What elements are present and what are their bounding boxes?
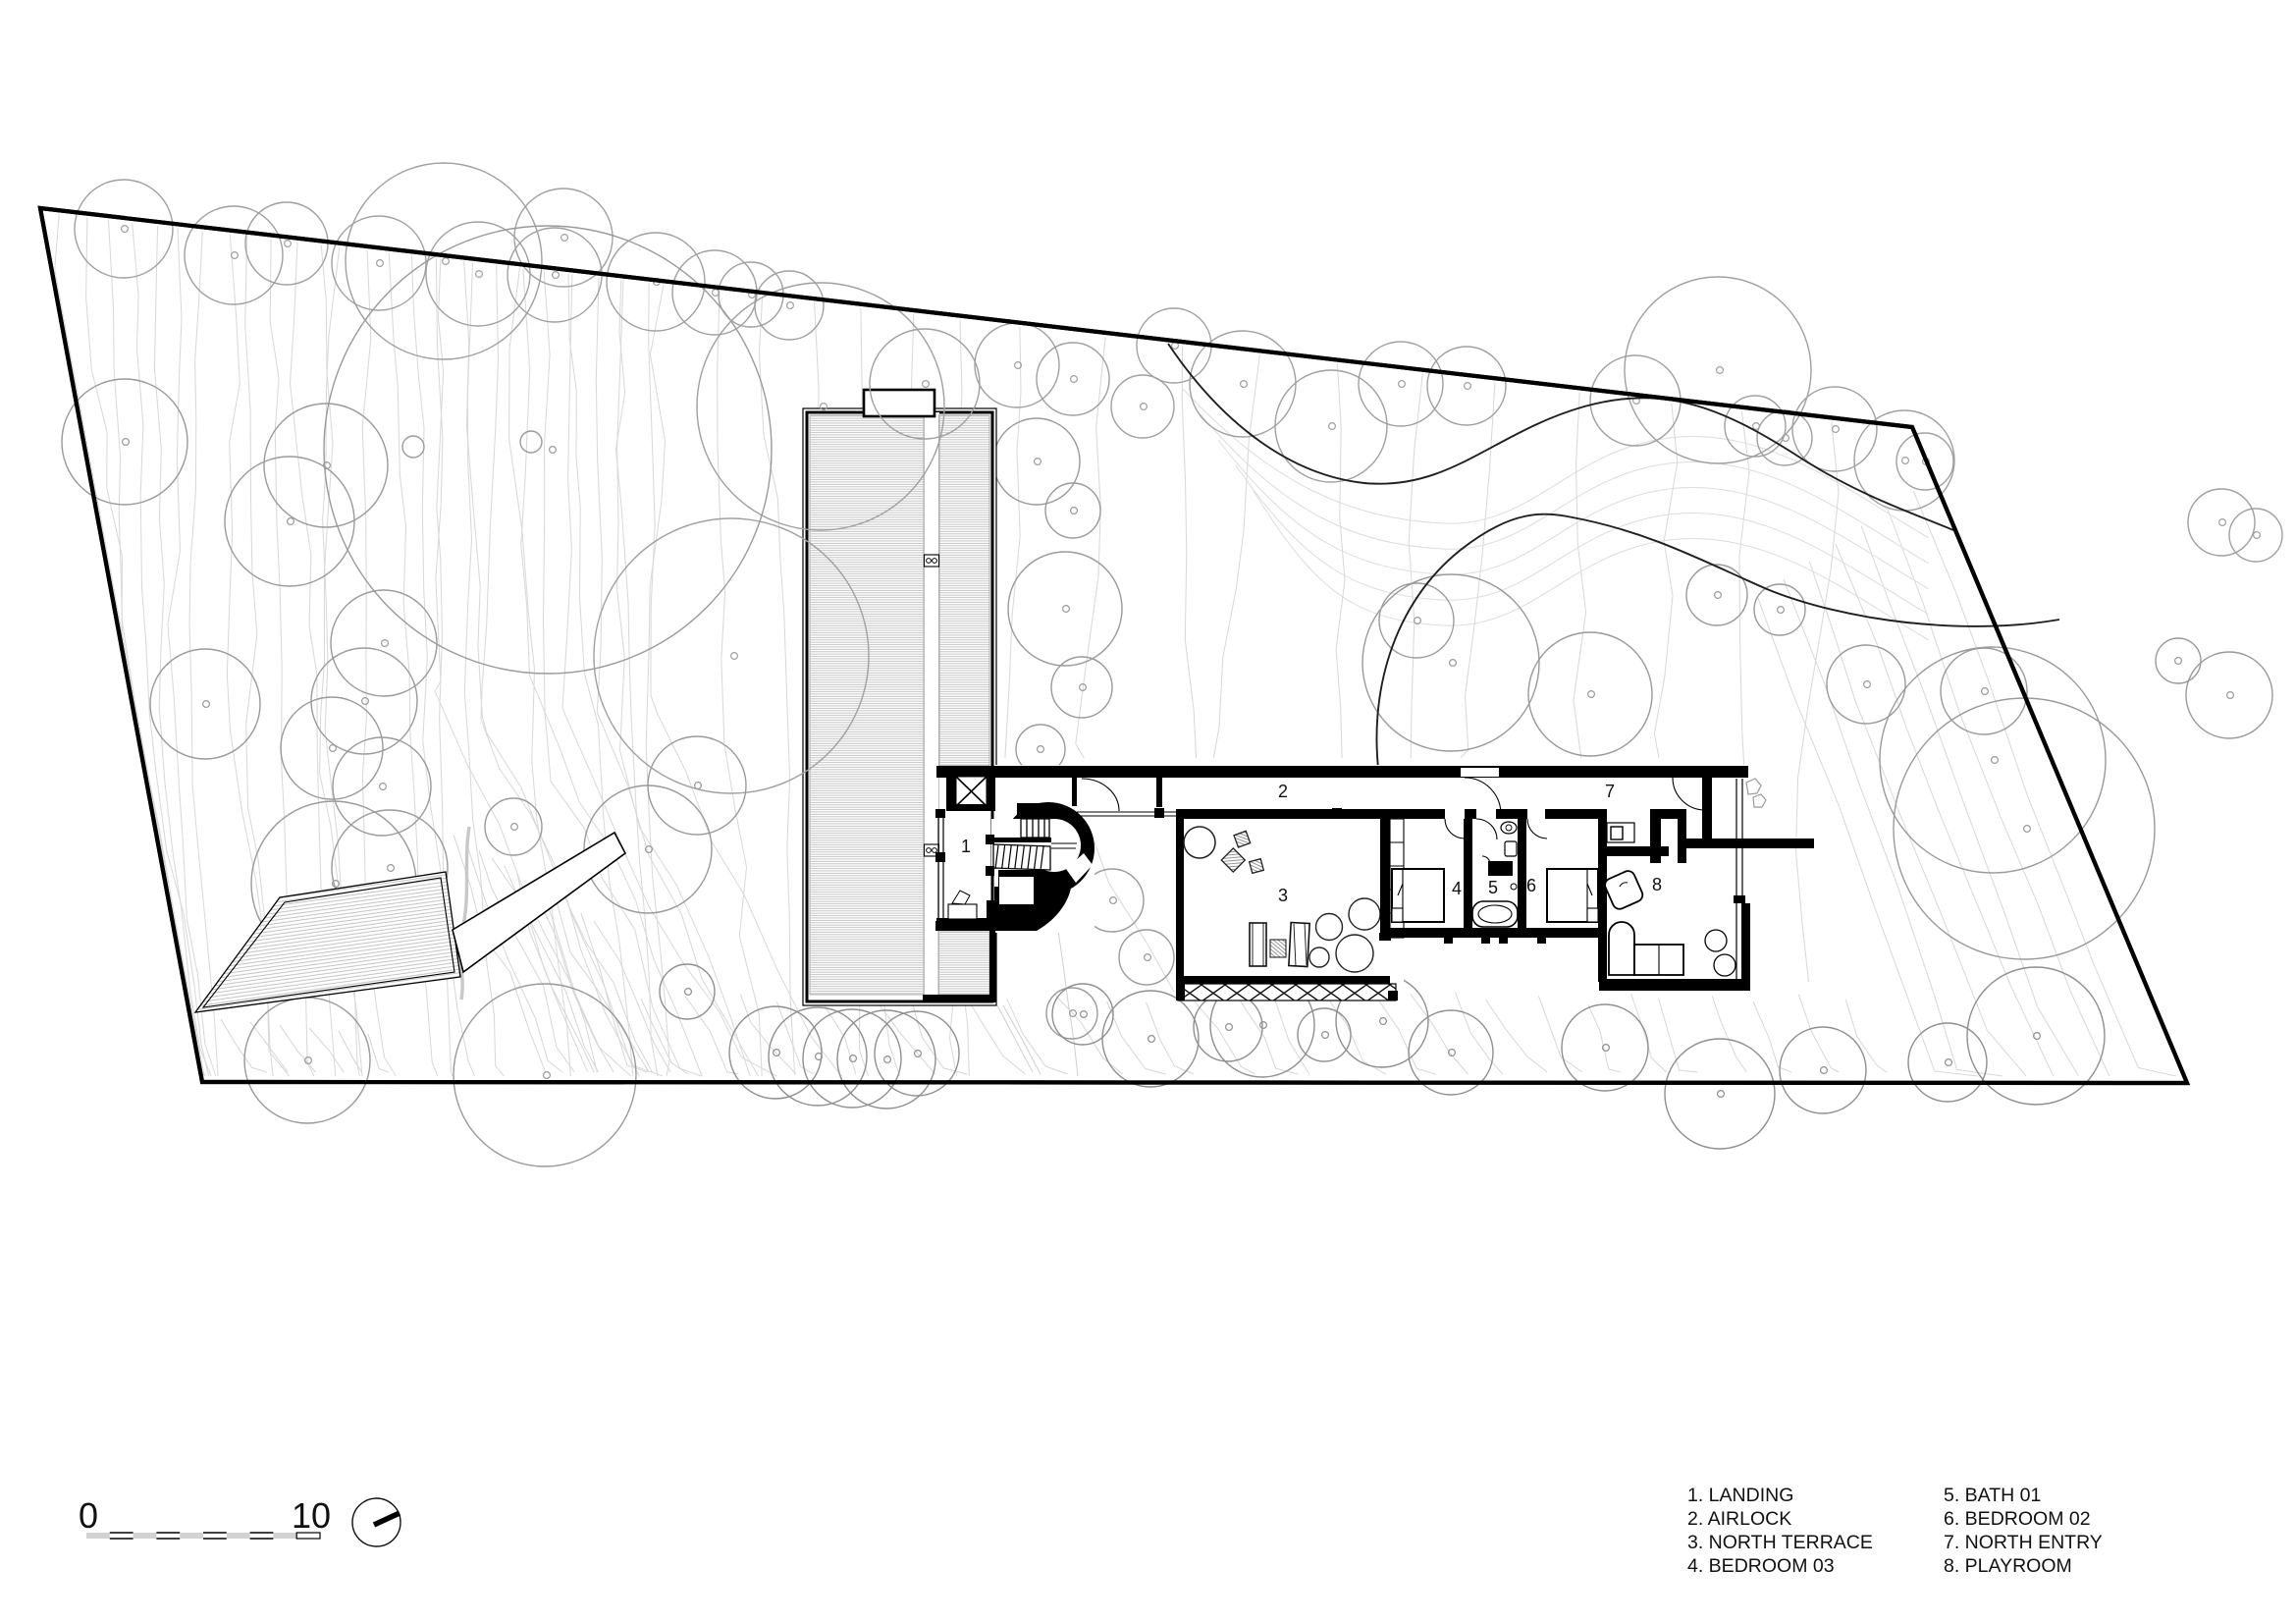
svg-text:10: 10	[292, 1495, 331, 1536]
svg-text:2: 2	[1278, 782, 1288, 801]
svg-text:8. PLAYROOM: 8. PLAYROOM	[1944, 1555, 2072, 1577]
svg-text:8: 8	[1652, 875, 1662, 894]
svg-text:6: 6	[1526, 876, 1536, 895]
svg-text:4: 4	[1452, 879, 1462, 898]
svg-text:5: 5	[1488, 878, 1498, 897]
svg-text:7: 7	[1605, 782, 1615, 801]
svg-text:2. AIRLOCK: 2. AIRLOCK	[1687, 1508, 1791, 1530]
svg-text:6. BEDROOM 02: 6. BEDROOM 02	[1944, 1508, 2091, 1530]
svg-text:3. NORTH TERRACE: 3. NORTH TERRACE	[1687, 1532, 1873, 1553]
svg-text:5. BATH 01: 5. BATH 01	[1944, 1485, 2041, 1506]
svg-text:4. BEDROOM 03: 4. BEDROOM 03	[1687, 1555, 1835, 1577]
svg-text:1. LANDING: 1. LANDING	[1687, 1485, 1793, 1506]
svg-text:7. NORTH ENTRY: 7. NORTH ENTRY	[1944, 1532, 2103, 1553]
svg-text:3: 3	[1278, 886, 1288, 905]
svg-text:1: 1	[961, 837, 971, 856]
svg-text:0: 0	[79, 1495, 98, 1536]
